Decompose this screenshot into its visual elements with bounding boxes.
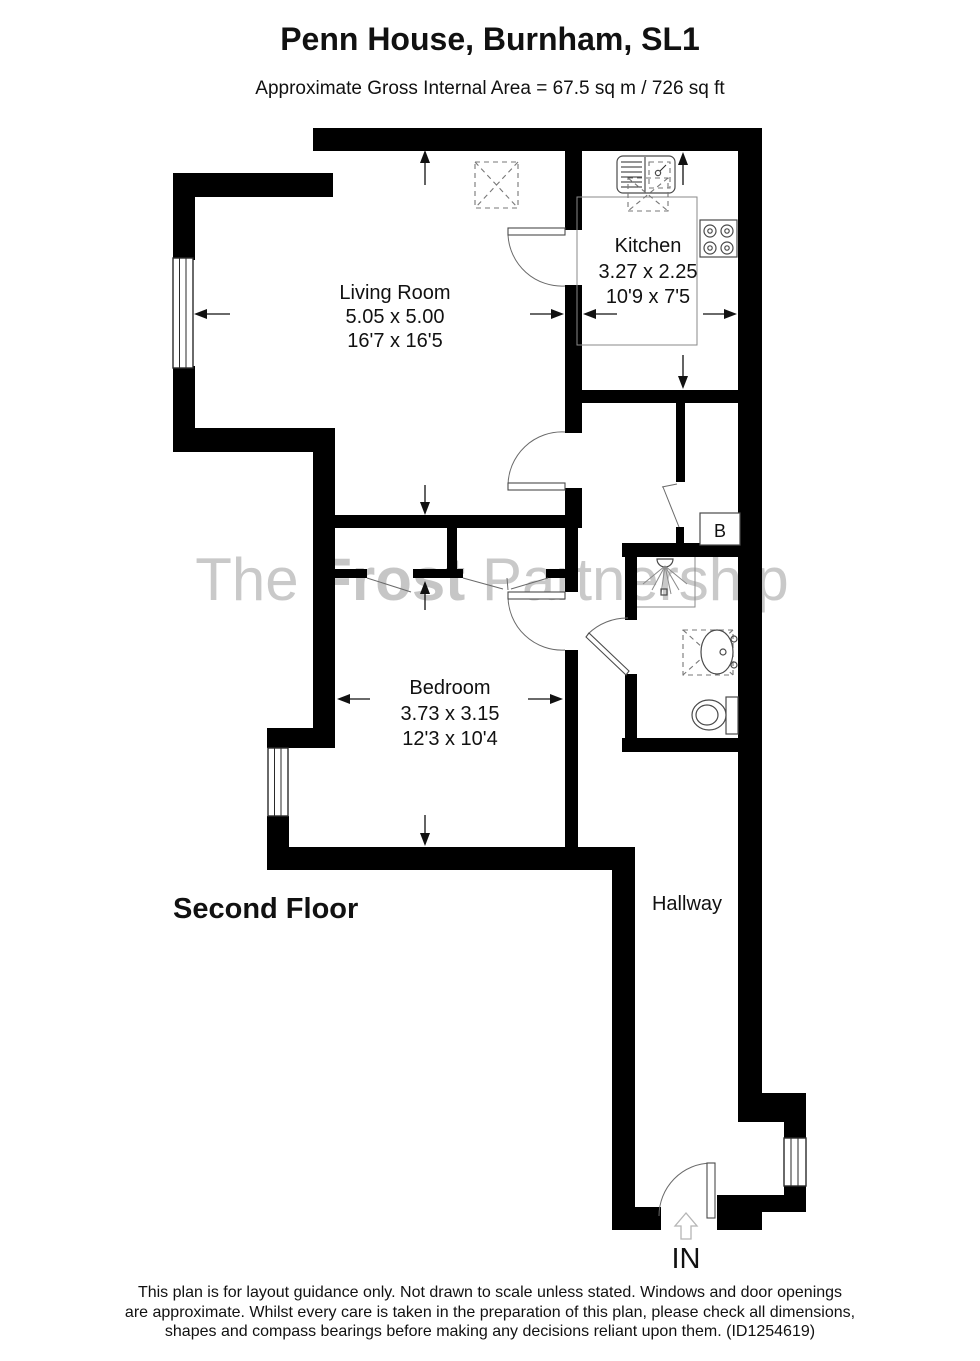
basin-bowl [701, 630, 733, 674]
basin-icon [683, 630, 737, 675]
door-leaf [508, 483, 565, 490]
wall-right-step [738, 1093, 806, 1122]
wall-cupboard-stub-lower [676, 527, 684, 545]
door-arc [508, 235, 565, 286]
living-room-label: Living Room [339, 282, 450, 304]
appliance-cross [628, 178, 668, 211]
wall-bathroom-left-lower [625, 674, 637, 740]
basin-tap [731, 636, 737, 642]
door-line [662, 484, 677, 487]
wall-bedroom-below-window [267, 816, 289, 850]
disclaimer-line-2: are approximate. Whilst every care is ta… [125, 1304, 855, 1321]
floor-label: Second Floor [173, 893, 358, 925]
door-leaf [586, 633, 629, 675]
door-arc [659, 1163, 711, 1216]
arrow-head [678, 152, 688, 165]
cupboard-door [662, 484, 679, 527]
bedroom-window [268, 748, 288, 816]
wall-bedroom-step [267, 728, 335, 748]
window-frame [268, 748, 288, 816]
wall-closet-divider [447, 528, 457, 569]
toilet-cistern [726, 697, 738, 734]
wall-closet-stub-mid [413, 569, 463, 578]
door-arc [508, 432, 565, 486]
wall-bathroom-top [622, 543, 762, 557]
wall-bedroom-right-upper [565, 528, 578, 592]
wall-bedroom-bottom [267, 847, 635, 870]
arrow-head [583, 309, 596, 319]
page-title: Penn House, Burnham, SL1 [280, 21, 700, 57]
entrance-door [659, 1163, 715, 1218]
wall-right-above-window [784, 1122, 806, 1138]
burner [721, 242, 733, 254]
disclaimer-line-1: This plan is for layout guidance only. N… [138, 1284, 842, 1301]
wall-center-lower [565, 488, 582, 517]
burner-center [708, 229, 712, 233]
burner-center [725, 246, 729, 250]
appliance-icon [628, 178, 668, 211]
boiler-label: B [714, 521, 726, 541]
arrow-head [420, 150, 430, 163]
bedroom-size-metric: 3.73 x 3.15 [401, 703, 500, 725]
burner-center [725, 229, 729, 233]
wall-hall-left [612, 847, 635, 1230]
page-subtitle: Approximate Gross Internal Area = 67.5 s… [255, 78, 725, 99]
wall-bedroom-left [313, 428, 335, 730]
floor-plan-svg: Penn House, Burnham, SL1 Approximate Gro… [0, 0, 980, 1356]
door-leaf [707, 1163, 715, 1218]
living-room-dashed-feature [475, 162, 518, 208]
disclaimer: This plan is for layout guidance only. N… [125, 1284, 855, 1340]
wall-closet-stub-right [546, 569, 566, 578]
door-leaf [508, 592, 565, 599]
wall-cupboard-stub-upper [676, 403, 685, 482]
kitchen-size-metric: 3.27 x 2.25 [599, 261, 698, 283]
burner [704, 225, 716, 237]
wall-hall-bottom-step [633, 1207, 661, 1230]
door-leaf [663, 487, 679, 527]
disclaimer-line-3: shapes and compass bearings before makin… [165, 1323, 815, 1340]
bedroom-size-imperial: 12'3 x 10'4 [402, 728, 498, 750]
toilet-icon [692, 697, 738, 734]
basin-tap [731, 662, 737, 668]
wall-bedroom-top [313, 515, 582, 528]
boiler-cupboard: B [700, 513, 740, 545]
arrow-head [337, 694, 350, 704]
sink-icon [617, 156, 675, 193]
living-room-door [508, 432, 565, 490]
kitchen-door [508, 228, 565, 286]
arrow-head [724, 309, 737, 319]
sink-tap-line [660, 165, 666, 171]
watermark-word-1: The [195, 546, 315, 613]
wall-living-bottom-left [173, 428, 333, 452]
bedroom-label: Bedroom [409, 677, 490, 699]
floorplan-page: Penn House, Burnham, SL1 Approximate Gro… [0, 0, 980, 1356]
window-frame [784, 1138, 806, 1186]
living-room-size-imperial: 16'7 x 16'5 [347, 330, 443, 352]
wall-left-upper [173, 173, 195, 260]
arrow-head [194, 309, 207, 319]
window-frame [173, 258, 193, 368]
door-arc [588, 618, 628, 634]
toilet-bowl [692, 700, 726, 730]
entrance-arrow-icon [675, 1213, 697, 1239]
entrance-label: IN [672, 1243, 701, 1275]
wall-bathroom-bottom [622, 738, 762, 752]
burner [704, 242, 716, 254]
wall-center-mid [565, 285, 582, 433]
wall-left-top [173, 173, 333, 197]
hallway-window [784, 1138, 806, 1186]
wall-top [313, 128, 762, 151]
sink-tap [655, 170, 660, 175]
arrow-head [678, 376, 688, 389]
wall-bathroom-left-upper [625, 557, 637, 620]
arrow-head [420, 833, 430, 846]
wall-right [738, 128, 762, 1122]
appliance-cross [628, 178, 668, 211]
wall-center-upper [565, 128, 582, 230]
hob-icon [700, 220, 737, 257]
wall-closet-stub-left [335, 569, 367, 578]
living-room-size-metric: 5.05 x 5.00 [346, 306, 445, 328]
arrow-head [551, 309, 564, 319]
wall-kitchen-bottom [565, 390, 740, 403]
watermark-word-2: Frost [315, 546, 465, 613]
arrow-head [550, 694, 563, 704]
kitchen-size-imperial: 10'9 x 7'5 [606, 286, 690, 308]
kitchen-label: Kitchen [615, 235, 682, 257]
burner [721, 225, 733, 237]
wall-bottom-right-b [717, 1207, 762, 1230]
bathroom-door [586, 618, 629, 675]
living-room-window [173, 258, 193, 368]
appliance-outline [628, 178, 668, 211]
wall-bedroom-right-lower [565, 650, 578, 847]
hallway-label: Hallway [652, 893, 722, 915]
door-leaf [508, 228, 565, 235]
burner-center [708, 246, 712, 250]
arrow-head [420, 502, 430, 515]
